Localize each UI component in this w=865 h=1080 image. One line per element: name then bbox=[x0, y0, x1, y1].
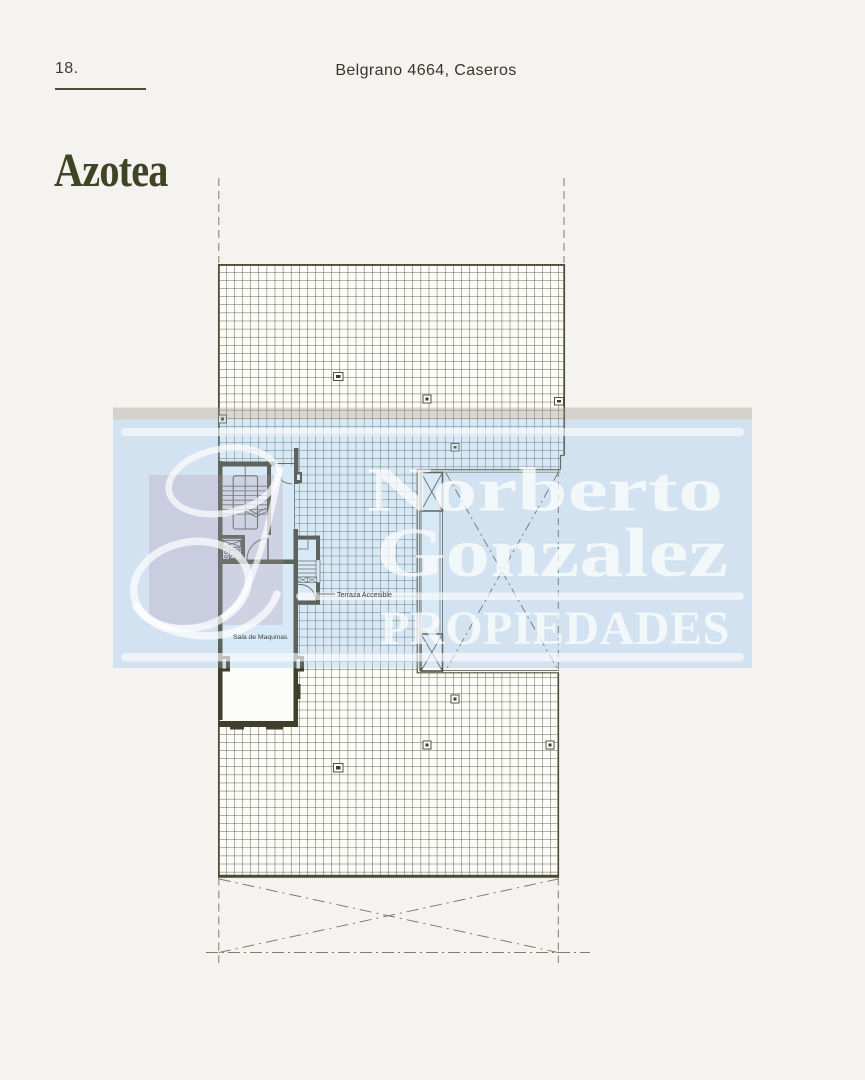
svg-text:Sala de Maquinas: Sala de Maquinas bbox=[233, 634, 288, 641]
svg-text:Gonzalez: Gonzalez bbox=[376, 515, 728, 592]
svg-text:Norberto: Norberto bbox=[367, 455, 723, 525]
svg-text:Terraza Accesible: Terraza Accesible bbox=[337, 592, 392, 599]
svg-text:PROPIEDADES: PROPIEDADES bbox=[380, 602, 730, 655]
